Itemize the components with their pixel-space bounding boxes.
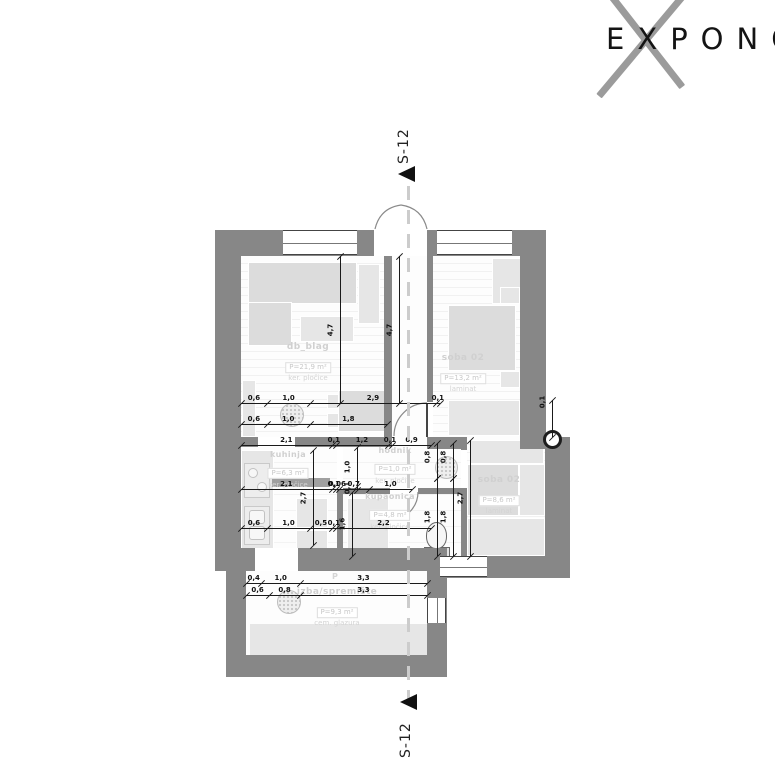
dim-row-mid-a: 2,10,11,20,10,9 [241,445,431,446]
wall [384,256,392,447]
window-glass-line [283,243,357,244]
logo-text: EXPONO [606,22,775,56]
dim-18-right: 1,8 [453,478,454,556]
section-arrow-bottom-icon [400,694,417,710]
dim-row-low: 0,61,00,50,12,2 [241,528,431,529]
room-label-dbblag: db_blag P=21,9 m² ker. pločice [285,342,331,384]
chair [327,413,339,428]
dim-blag-height: 4,7 [340,256,341,403]
wall [520,230,546,449]
dresser [519,464,545,516]
wardrobe [448,400,520,436]
dim-kuhinja-height: 2,7 [313,450,314,545]
shelf [358,264,380,324]
window-glass-line [440,567,487,568]
dim-bath-height: 1,6 [352,492,353,556]
dim-corridor-height: 4,7 [399,256,400,403]
dim-row-top-b: 0,61,01,8 [241,424,387,425]
wall [226,655,447,677]
cabinet [242,380,256,437]
expono-logo: EXPONO [592,2,772,78]
floorplan-canvas: EXPONO S-12 S-12 [0,0,775,764]
dim-row-mid-b: 2,10,10,060,71,0 [241,489,412,490]
nightstand [500,371,520,388]
dim-hodnik-height: 1,00,1 [357,447,358,490]
dim-wall-right: 0,1 [552,400,553,437]
window-glass-line [437,243,512,244]
dim-row-izba-a: 0,41,03,3 [246,583,427,584]
section-label-top: S-12 [396,118,412,164]
wall [545,437,570,578]
section-arrow-top-icon [398,166,415,182]
window [440,556,487,577]
section-line [407,186,410,700]
window [437,230,512,255]
door-opening [461,450,467,488]
room-label-soba02-top: soba 02 P=13,2 m² laminat [440,353,486,395]
window-glass-line [437,598,438,623]
window [427,598,446,623]
nightstand [500,287,520,304]
wall [215,230,241,571]
room-label-soba02-mid: soba 02 P=8,6 m² laminat [478,475,521,517]
section-label-bottom: S-12 [398,712,414,758]
sofa [248,302,292,346]
stove [244,463,270,498]
burner-icon [257,482,267,492]
burner-icon [248,468,258,478]
wall [427,256,433,402]
door-opening-entrance [374,230,427,256]
wall [418,488,461,494]
dim-08-left: 0,8 [437,443,438,478]
window [283,230,357,255]
dim-18-left: 1,8 [437,478,438,556]
dim-soba-mid-height: 2,7 [470,440,471,556]
door-opening [427,402,433,437]
dim-08-right: 0,8 [453,443,454,478]
dresser [467,518,545,556]
entry-marker: P [332,572,338,581]
door-opening [255,548,298,571]
dim-row-izba-b: 0,60,83,3 [246,595,427,596]
